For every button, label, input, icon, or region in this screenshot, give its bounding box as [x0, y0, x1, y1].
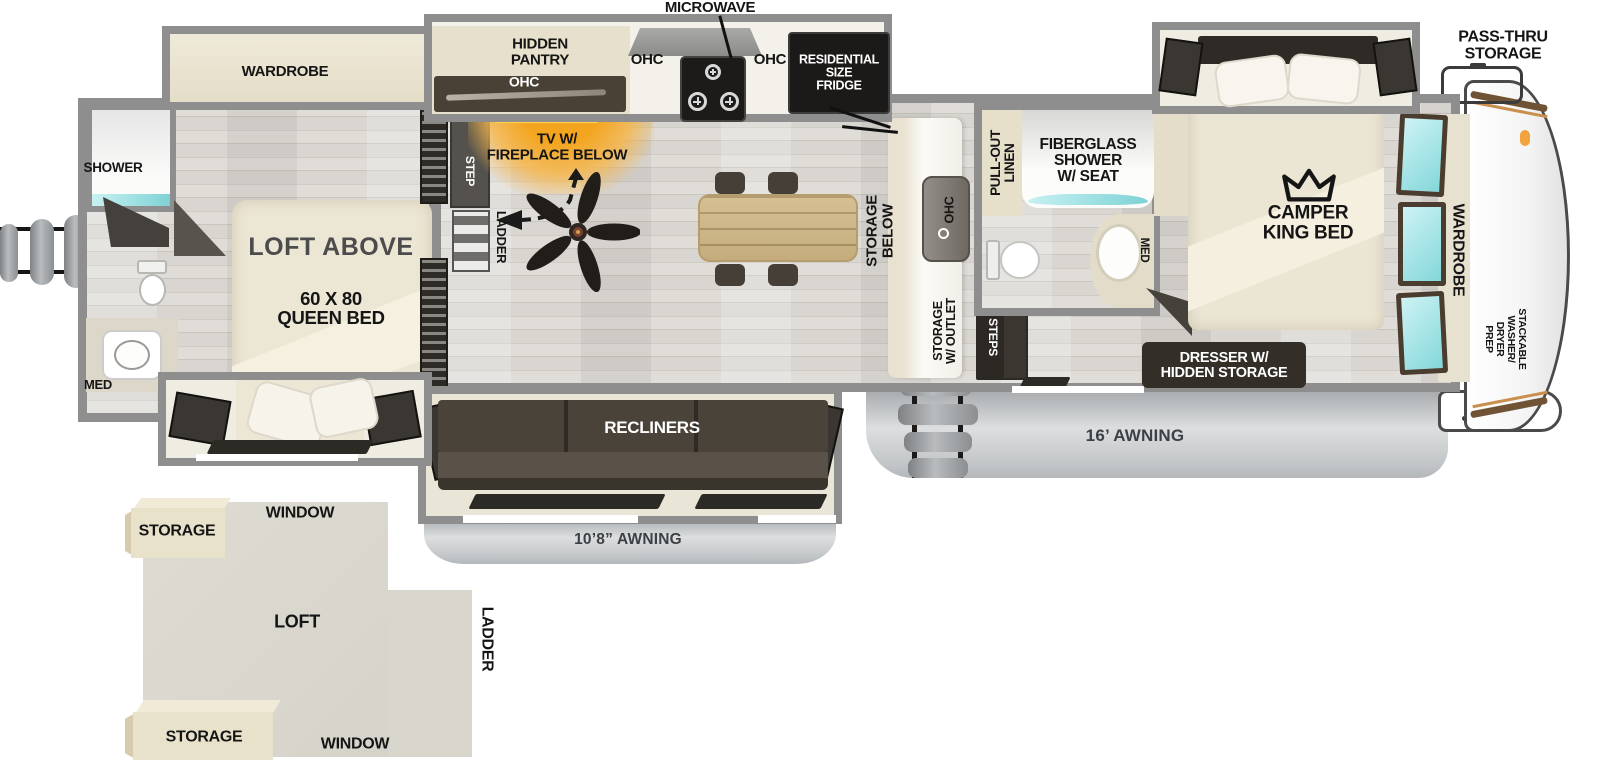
burner-icon: [688, 92, 707, 111]
bath-med-label: MED: [1137, 238, 1149, 263]
dining-chair: [715, 172, 745, 194]
rear-wardrobe-label: WARDROBE: [242, 64, 329, 80]
queen-bed-label: 60 X 80 QUEEN BED: [277, 289, 384, 327]
step-tread: [908, 458, 968, 478]
ladder-label: LADDER: [494, 211, 508, 263]
loft-ladder-label: LADDER: [478, 607, 495, 672]
rear-ladder-rung: [30, 219, 54, 285]
loft-label: LOFT: [274, 613, 320, 632]
pillow: [1286, 52, 1362, 105]
toilet-tank: [986, 240, 1000, 280]
burner-icon: [705, 64, 721, 80]
washer-prep-label: STACKABLE WASHER/ DRYER PREP: [1483, 308, 1527, 369]
wall-highlight: [1012, 386, 1144, 393]
floor-mat: [468, 494, 665, 509]
wardrobe-mirror-door: [1396, 291, 1448, 375]
wardrobe-mirror-door: [1398, 202, 1446, 286]
louver-wall: [420, 258, 448, 388]
rear-shower-label: SHOWER: [84, 161, 143, 175]
toilet-bowl: [1000, 241, 1040, 279]
loft-window-bottom-label: WINDOW: [321, 737, 389, 754]
king-bed-label: CAMPER KING BED: [1263, 203, 1354, 243]
fridge-label: RESIDENTIAL SIZE FRIDGE: [799, 54, 879, 93]
tv-fireplace-label: TV W/ FIREPLACE BELOW: [487, 131, 628, 162]
island-ohc-label: OHC: [944, 197, 957, 224]
dining-chair: [768, 264, 798, 286]
rear-bed-slide-window: [168, 391, 231, 446]
rv-floor-plan: 16’ AWNING 10’8” AWNING PASS-THRU STORAG…: [0, 0, 1600, 773]
pass-thru-label: PASS-THRU STORAGE: [1458, 29, 1547, 62]
rear-toilet-bowl: [139, 274, 166, 306]
step-label: STEP: [464, 156, 476, 186]
burner-icon: [720, 92, 739, 111]
ceiling-fan-icon: [516, 170, 640, 294]
fiberglass-shower-label: FIBERGLASS SHOWER W/ SEAT: [1040, 137, 1137, 185]
wall-highlight: [758, 515, 836, 523]
wall-highlight: [463, 515, 638, 523]
pull-out-linen-label: PULL-OUT LINEN: [989, 130, 1017, 196]
ohc-right-label: OHC: [754, 52, 786, 68]
pantry-ohc-label: OHC: [509, 75, 539, 90]
rear-toilet-tank: [137, 260, 167, 274]
steps-label: STEPS: [987, 318, 999, 356]
rear-med-label: MED: [84, 378, 112, 392]
storage-outlet-label: STORAGE W/ OUTLET: [932, 298, 958, 364]
bath-sink-icon: [1096, 224, 1142, 282]
recliner-sofa-seat: [438, 452, 828, 478]
wardrobe-label: WARDROBE: [1449, 204, 1466, 297]
bedroom-slide-window: [1158, 38, 1203, 97]
floor-mat: [207, 440, 374, 454]
rear-ladder-rung: [0, 224, 18, 282]
wardrobe-mirror-door: [1396, 113, 1448, 197]
awning-10ft-label: 10’8” AWNING: [574, 532, 682, 548]
hidden-pantry-label: HIDDEN PANTRY: [511, 36, 569, 67]
dining-chair: [768, 172, 798, 194]
front-cap: [1464, 80, 1570, 432]
bedroom-slide-window: [1372, 38, 1417, 97]
rear-sink-bowl-icon: [114, 340, 150, 370]
dresser-label: DRESSER W/ HIDDEN STORAGE: [1161, 351, 1288, 381]
floor-mat: [694, 494, 827, 509]
loft-above-label: LOFT ABOVE: [248, 234, 413, 260]
island-light-icon: [938, 228, 949, 239]
loft-storage-top-label: STORAGE: [139, 524, 216, 541]
bedside-cabinet: [1154, 104, 1188, 216]
recliner-sofa-front: [438, 478, 828, 490]
loft-floor-extension: [388, 590, 472, 757]
loft-storage-bottom-label: STORAGE: [166, 730, 243, 747]
ohc-left-label: OHC: [631, 52, 663, 68]
dining-table: [698, 194, 858, 262]
microwave-label: MICROWAVE: [665, 0, 755, 16]
step-tread: [898, 404, 978, 425]
cap-marker-light: [1520, 130, 1530, 146]
loft-window-top-label: WINDOW: [266, 506, 334, 523]
shower-sill: [1028, 194, 1148, 205]
crown-icon: [1280, 168, 1338, 206]
wall-highlight: [196, 454, 358, 461]
awning-16ft-label: 16’ AWNING: [1086, 427, 1185, 445]
storage-below-label: STORAGE BELOW: [864, 195, 895, 267]
pass-thru-door-handle: [1470, 63, 1486, 68]
recliners-label: RECLINERS: [604, 419, 700, 437]
dining-chair: [715, 264, 745, 286]
step-tread: [904, 432, 972, 452]
rear-shower: [86, 104, 176, 212]
